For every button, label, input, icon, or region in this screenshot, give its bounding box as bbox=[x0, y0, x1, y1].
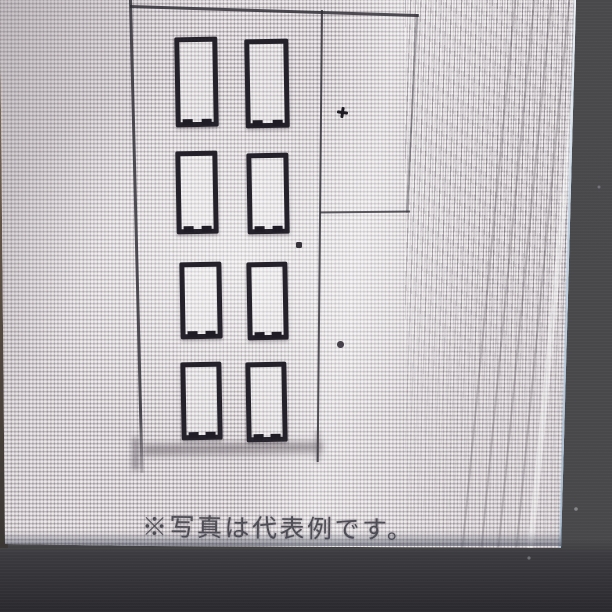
door-top-edge-line bbox=[130, 5, 419, 17]
photo-of-screen: ※写真は代表例です。 bbox=[0, 0, 612, 612]
door-left-shadow-smear bbox=[133, 438, 138, 470]
door-handle-dot-icon bbox=[296, 242, 302, 248]
dust-specks bbox=[0, 0, 2, 2]
round-screw-icon bbox=[337, 341, 344, 348]
door-bottom-shadow bbox=[142, 442, 322, 454]
door-panel-opening bbox=[175, 151, 218, 235]
door-right-edge-line bbox=[317, 10, 324, 462]
screen-content: ※写真は代表例です。 bbox=[0, 0, 612, 612]
door-panel-opening bbox=[246, 262, 288, 341]
side-frame-mid-line bbox=[320, 211, 410, 214]
door-right-shadow-smear bbox=[316, 430, 319, 462]
door-panel-opening bbox=[245, 362, 287, 443]
door-panel-opening bbox=[244, 39, 290, 129]
cross-screw-icon bbox=[336, 106, 348, 118]
door-panel-opening bbox=[174, 37, 219, 128]
door-panel-opening bbox=[180, 362, 222, 441]
door-panel-opening bbox=[246, 153, 289, 235]
door-left-edge-line bbox=[129, 0, 144, 473]
screen-bottom-shadow bbox=[0, 532, 568, 546]
door-panel-opening bbox=[179, 262, 222, 340]
